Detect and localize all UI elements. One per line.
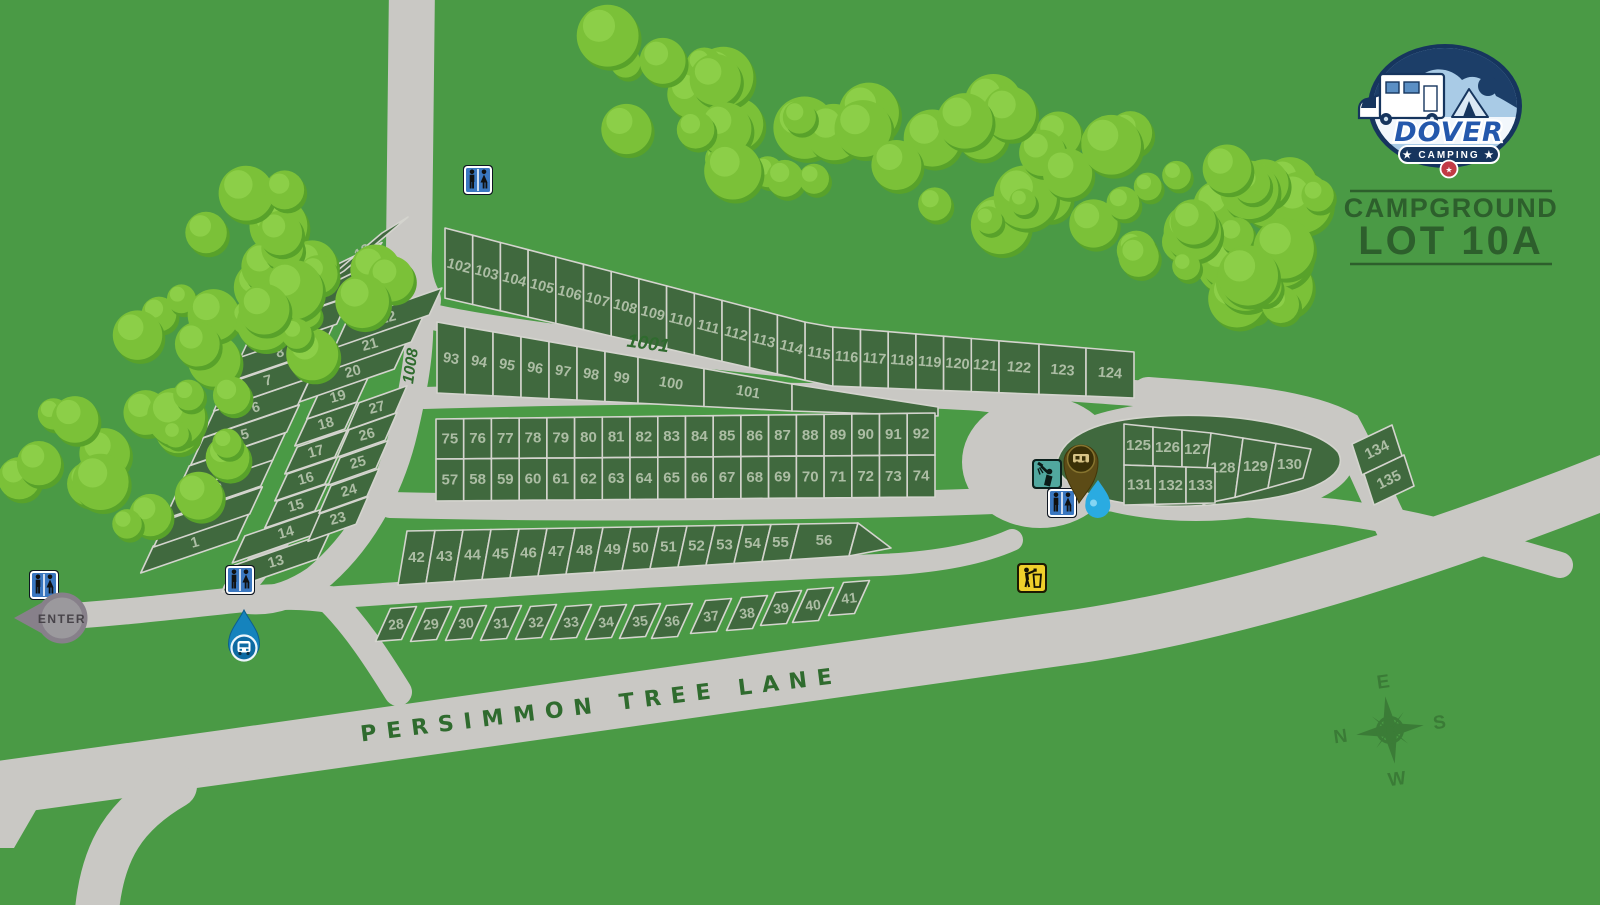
site-96[interactable]: 96 xyxy=(521,337,549,399)
site-76[interactable]: 76 xyxy=(464,418,492,459)
site-132[interactable]: 132 xyxy=(1155,466,1186,504)
site-118[interactable]: 118 xyxy=(888,332,916,390)
site-127[interactable]: 127 xyxy=(1182,430,1211,468)
site-106[interactable]: 106 xyxy=(556,257,584,330)
site-69[interactable]: 69 xyxy=(769,456,797,498)
site-126[interactable]: 126 xyxy=(1153,427,1182,467)
site-63[interactable]: 63 xyxy=(602,457,630,499)
site-70[interactable]: 70 xyxy=(796,456,824,498)
site-99[interactable]: 99 xyxy=(605,351,638,403)
site-88[interactable]: 88 xyxy=(796,414,824,456)
site-62[interactable]: 62 xyxy=(575,458,603,500)
campground-map: 1021031041051061071081091101111121131141… xyxy=(0,0,1600,905)
site-112[interactable]: 112 xyxy=(722,300,750,367)
logo-name: DOVER xyxy=(1394,117,1504,148)
restroom-east--restroom-icon[interactable] xyxy=(1047,488,1077,518)
site-90[interactable]: 90 xyxy=(852,414,880,456)
site-68[interactable]: 68 xyxy=(741,456,769,498)
entrance-label: ENTER xyxy=(38,612,86,626)
site-124[interactable]: 124 xyxy=(1086,348,1134,398)
site-60[interactable]: 60 xyxy=(519,458,547,500)
logo-subtitle: ★ CAMPING ★ xyxy=(1403,150,1496,161)
site-94[interactable]: 94 xyxy=(465,327,493,396)
site-77[interactable]: 77 xyxy=(491,418,519,459)
site-87[interactable]: 87 xyxy=(769,415,797,457)
site-116[interactable]: 116 xyxy=(833,327,861,387)
site-104[interactable]: 104 xyxy=(500,243,528,318)
site-107[interactable]: 107 xyxy=(584,264,612,336)
site-84[interactable]: 84 xyxy=(686,416,714,457)
site-59[interactable]: 59 xyxy=(491,458,519,500)
site-57[interactable]: 57 xyxy=(436,459,464,501)
site-93[interactable]: 93 xyxy=(437,322,465,394)
site-115[interactable]: 115 xyxy=(805,322,833,386)
site-123[interactable]: 123 xyxy=(1039,344,1086,396)
site-74[interactable]: 74 xyxy=(907,455,935,497)
site-71[interactable]: 71 xyxy=(824,456,852,498)
site-67[interactable]: 67 xyxy=(713,457,741,499)
site-122[interactable]: 122 xyxy=(999,341,1039,395)
site-72[interactable]: 72 xyxy=(852,455,880,497)
site-81[interactable]: 81 xyxy=(602,417,630,458)
site-120[interactable]: 120 xyxy=(944,336,972,391)
site-58[interactable]: 58 xyxy=(464,459,492,501)
logo-badge-star: ★ xyxy=(1445,166,1452,175)
site-111[interactable]: 111 xyxy=(694,293,722,361)
site-110[interactable]: 110 xyxy=(667,286,695,355)
restroom-north--restroom-icon[interactable] xyxy=(463,165,493,195)
site-91[interactable]: 91 xyxy=(880,413,908,455)
site-89[interactable]: 89 xyxy=(824,414,852,456)
site-113[interactable]: 113 xyxy=(750,308,778,374)
site-79[interactable]: 79 xyxy=(547,417,575,458)
restroom-central--restroom-icon[interactable] xyxy=(225,565,255,595)
compass-west-label: W xyxy=(1387,768,1408,791)
site-61[interactable]: 61 xyxy=(547,458,575,500)
site-66[interactable]: 66 xyxy=(686,457,714,499)
site-125[interactable]: 125 xyxy=(1124,424,1153,466)
site-82[interactable]: 82 xyxy=(630,416,658,457)
site-85[interactable]: 85 xyxy=(713,415,741,457)
site-103[interactable]: 103 xyxy=(473,235,501,311)
site-114[interactable]: 114 xyxy=(777,315,805,380)
site-121[interactable]: 121 xyxy=(971,339,999,393)
site-65[interactable]: 65 xyxy=(658,457,686,499)
site-105[interactable]: 105 xyxy=(528,250,556,324)
site-119[interactable]: 119 xyxy=(916,334,944,391)
site-133[interactable]: 133 xyxy=(1186,467,1215,504)
site-73[interactable]: 73 xyxy=(880,455,908,497)
lot-title: LOT 10A xyxy=(1358,219,1543,263)
site-78[interactable]: 78 xyxy=(519,418,547,459)
logo-tree-silhouette xyxy=(1478,76,1498,96)
site-95[interactable]: 95 xyxy=(493,332,521,398)
site-98[interactable]: 98 xyxy=(577,347,605,402)
site-131[interactable]: 131 xyxy=(1124,465,1155,505)
site-56[interactable]: 56 xyxy=(790,523,858,560)
site-102[interactable]: 102 xyxy=(445,228,473,305)
site-83[interactable]: 83 xyxy=(658,416,686,457)
site-97[interactable]: 97 xyxy=(549,342,577,401)
site-80[interactable]: 80 xyxy=(575,417,603,458)
shower-station--shower-icon[interactable] xyxy=(1032,459,1062,489)
site-92[interactable]: 92 xyxy=(907,413,935,455)
compass-north-label: N xyxy=(1332,726,1349,749)
site-86[interactable]: 86 xyxy=(741,415,769,457)
site-75[interactable]: 75 xyxy=(436,419,464,459)
site-117[interactable]: 117 xyxy=(861,329,889,388)
title-block: CAMPGROUND LOT 10A xyxy=(1344,191,1559,264)
trash-station--trash-icon[interactable] xyxy=(1017,563,1047,593)
site-64[interactable]: 64 xyxy=(630,457,658,499)
